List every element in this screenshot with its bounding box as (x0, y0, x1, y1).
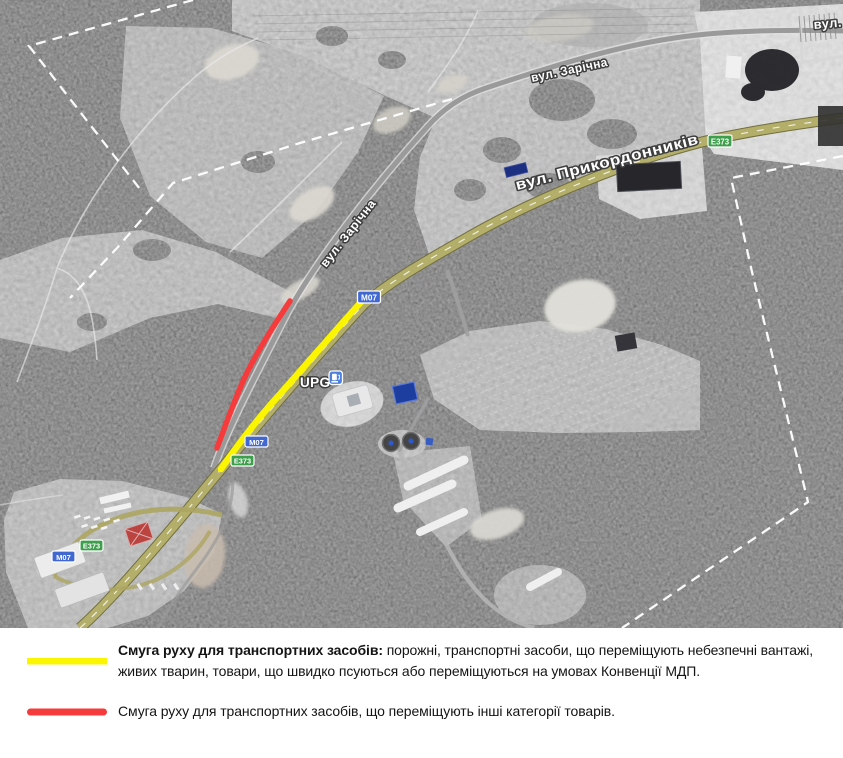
svg-text:E373: E373 (711, 137, 730, 146)
legend-text-yellow: Смуга руху для транспортних засобів: пор… (118, 640, 830, 682)
upg-label: UPG (300, 375, 330, 390)
m07-shield: M07 (358, 291, 381, 303)
fuel-station-icon (329, 371, 343, 385)
legend-text-red: Смуга руху для транспортних засобів, що … (118, 701, 830, 722)
legend-text-yellow-bold: Смуга руху для транспортних засобів: (118, 642, 383, 658)
legend-line-red (27, 705, 107, 719)
m07-shield: M07 (245, 436, 268, 447)
svg-text:M07: M07 (249, 438, 264, 447)
e373-shield: E373 (708, 135, 732, 147)
m07-shield: M07 (52, 551, 75, 562)
street-label-vul-cutoff: вул. (813, 15, 842, 32)
e373-shield: E373 (80, 540, 103, 551)
legend-item-red-lane: Смуга руху для транспортних засобів, що … (0, 701, 843, 722)
legend-line-yellow (27, 654, 107, 668)
satellite-map: M07 M07 M07 E373 E373 E373 (0, 0, 843, 628)
legend: Смуга руху для транспортних засобів: пор… (0, 628, 843, 722)
legend-item-yellow-lane: Смуга руху для транспортних засобів: пор… (0, 640, 843, 682)
page: M07 M07 M07 E373 E373 E373 (0, 0, 843, 758)
blue-building (392, 382, 417, 404)
e373-shield: E373 (231, 455, 254, 466)
svg-text:E373: E373 (83, 542, 100, 551)
svg-text:M07: M07 (361, 294, 377, 303)
svg-text:E373: E373 (234, 457, 251, 466)
svg-text:M07: M07 (56, 553, 71, 562)
